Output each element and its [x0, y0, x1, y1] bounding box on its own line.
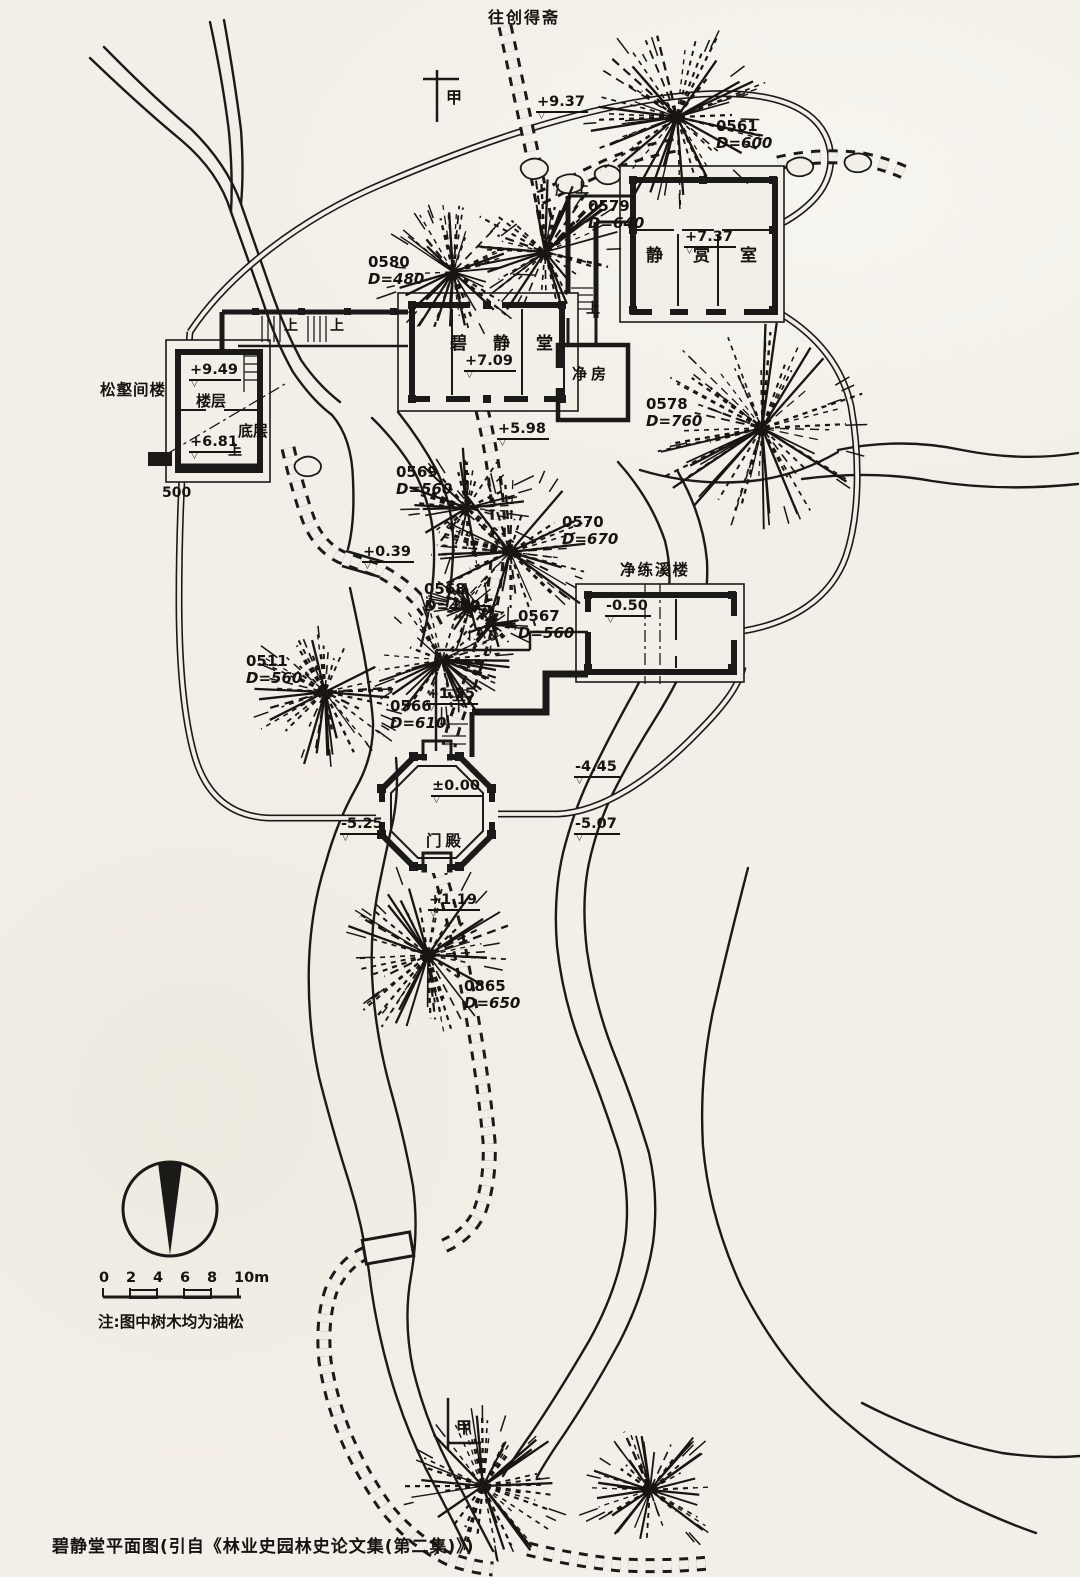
- tree-diameter: D=640: [588, 214, 644, 232]
- room-label-louceng: 楼层: [196, 390, 226, 411]
- elevation-value: +5.98: [497, 421, 549, 440]
- tree-label: 0578D=760: [646, 396, 702, 429]
- garden-road: [495, 667, 743, 814]
- level-triangle-icon: ▽: [342, 835, 386, 842]
- tree-symbol: [579, 1432, 708, 1545]
- elevation-marker: +1.19▽: [428, 892, 480, 918]
- tree-diameter: D=600: [716, 134, 772, 152]
- elevation-marker: ±0.00▽: [431, 778, 483, 804]
- tree-diameter: D=460: [424, 597, 480, 615]
- tree-label: 0570D=670: [562, 514, 618, 547]
- stair-direction-label: 上: [575, 178, 589, 198]
- elevation-marker: +0.39▽: [362, 544, 414, 570]
- tree-label: 0579D=640: [588, 198, 644, 231]
- level-triangle-icon: ▽: [607, 617, 651, 624]
- tree-diameter: D=560: [396, 480, 452, 498]
- level-triangle-icon: ▽: [686, 248, 736, 255]
- room-label-jinglianxilou: 净练溪楼: [620, 558, 690, 580]
- stream-line: [90, 58, 231, 212]
- tree-id: 0865: [464, 977, 506, 995]
- tree-label: 0561D=600: [716, 118, 772, 151]
- rock: [845, 153, 872, 172]
- elevation-value: ±0.00: [431, 778, 483, 797]
- tree-label: 0865D=650: [464, 978, 520, 1011]
- elevation-marker: -5.07▽: [574, 816, 620, 842]
- stream-line: [862, 1403, 1080, 1457]
- tree-label: 0580D=480: [368, 254, 424, 287]
- note-text: 注:图中树木均为油松: [98, 1310, 244, 1332]
- level-triangle-icon: ▽: [576, 778, 620, 785]
- contour-label: 500: [162, 485, 191, 501]
- level-triangle-icon: ▽: [499, 440, 549, 447]
- stair-direction-label: 上: [228, 440, 242, 460]
- rock: [295, 457, 322, 477]
- level-triangle-icon: ▽: [433, 797, 483, 804]
- elevation-value: +1.19: [428, 892, 480, 911]
- stair-direction-label: 下: [452, 696, 466, 716]
- room-label-bijingtang: 碧静堂: [450, 329, 579, 354]
- rock: [595, 165, 621, 184]
- section-marker-label: 甲: [456, 1414, 472, 1438]
- room-label-diceng: 底层: [238, 420, 268, 441]
- section-marker-label: 甲: [446, 84, 462, 108]
- room-label-songhejianlou: 松壑间楼: [100, 378, 166, 400]
- tree-diameter: D=670: [562, 530, 618, 548]
- elevation-value: +0.39: [362, 544, 414, 563]
- elevation-value: -5.25: [340, 816, 386, 835]
- level-triangle-icon: ▽: [191, 381, 241, 388]
- elevation-value: -5.07: [574, 816, 620, 835]
- level-triangle-icon: ▽: [364, 563, 414, 570]
- plan-linework: [0, 0, 1080, 1577]
- garden-road: [743, 312, 857, 631]
- elevation-value: -0.50: [605, 598, 651, 617]
- tree-diameter: D=560: [246, 669, 302, 687]
- room-label-mendian: 门殿: [426, 829, 465, 851]
- tree-diameter: D=480: [368, 270, 424, 288]
- north-arrow-icon: [123, 1162, 217, 1256]
- rock: [787, 157, 814, 176]
- elevation-marker: -4.45▽: [574, 759, 620, 785]
- west-corridor: [222, 308, 408, 352]
- scale-tick-label: 2: [126, 1270, 136, 1286]
- tree-diameter: D=560: [518, 624, 574, 642]
- tree-id: 0561: [716, 117, 758, 135]
- caption-text: 碧静堂平面图(引自《林业史园林史论文集(第二集)》): [52, 1532, 475, 1557]
- tree-id: 0570: [562, 513, 604, 531]
- stair-direction-label: 上: [586, 298, 600, 318]
- elevation-marker: +7.37▽: [684, 229, 736, 255]
- stream-line: [702, 868, 1036, 1533]
- tree-diameter: D=760: [646, 412, 702, 430]
- site-plan-sheet: 往创得斋 静赏室 碧静堂 净房 松壑间楼 楼层 底层 净练溪楼 门殿 500 注…: [0, 0, 1080, 1577]
- level-triangle-icon: ▽: [466, 372, 516, 379]
- stream-line: [838, 444, 1078, 457]
- scale-tick-label: 8: [207, 1270, 217, 1286]
- scale-tick-label: 0: [99, 1270, 109, 1286]
- tree-label: 0568D=460: [424, 581, 480, 614]
- elevation-marker: +7.09▽: [464, 353, 516, 379]
- tree-label: 0567D=560: [518, 608, 574, 641]
- retaining-wall: [472, 674, 588, 712]
- elevation-value: +7.09: [464, 353, 516, 372]
- elevation-value: +9.37: [536, 94, 588, 113]
- garden-road: [743, 312, 857, 631]
- route-label: 往创得斋: [488, 4, 560, 28]
- tree-id: 0578: [646, 395, 688, 413]
- rock: [521, 159, 548, 179]
- elevation-marker: +5.98▽: [497, 421, 549, 447]
- tree-id: 0569: [396, 463, 438, 481]
- elevation-value: +7.37: [684, 229, 736, 248]
- scale-tick-label: 10m: [234, 1270, 269, 1286]
- stair-direction-label: 上: [284, 315, 298, 335]
- level-triangle-icon: ▽: [430, 911, 480, 918]
- tree-diameter: D=610: [390, 714, 446, 732]
- stair-direction-label: 上: [330, 315, 344, 335]
- level-triangle-icon: ▽: [576, 835, 620, 842]
- elevation-marker: -0.50▽: [605, 598, 651, 624]
- tree-label: 0569D=560: [396, 464, 452, 497]
- level-triangle-icon: ▽: [538, 113, 588, 120]
- plank-bridge: [362, 1232, 413, 1264]
- elevation-marker: -5.25▽: [340, 816, 386, 842]
- room-label-jingfang: 净房: [572, 363, 610, 384]
- elevation-value: +9.49: [189, 362, 241, 381]
- tree-id: 0580: [368, 253, 410, 271]
- scale-bar: [103, 1288, 241, 1298]
- elevation-value: -4.45: [574, 759, 620, 778]
- elevation-marker: +9.49▽: [189, 362, 241, 388]
- tree-id: 0579: [588, 197, 630, 215]
- tree-id: 0567: [518, 607, 560, 625]
- tree-label: 0511D=560: [246, 653, 302, 686]
- tree-symbol: [254, 626, 402, 767]
- tree-id: 0511: [246, 652, 288, 670]
- scale-tick-label: 6: [180, 1270, 190, 1286]
- tree-diameter: D=650: [464, 994, 520, 1012]
- elevation-marker: +9.37▽: [536, 94, 588, 120]
- tree-id: 0568: [424, 580, 466, 598]
- scale-tick-label: 4: [153, 1270, 163, 1286]
